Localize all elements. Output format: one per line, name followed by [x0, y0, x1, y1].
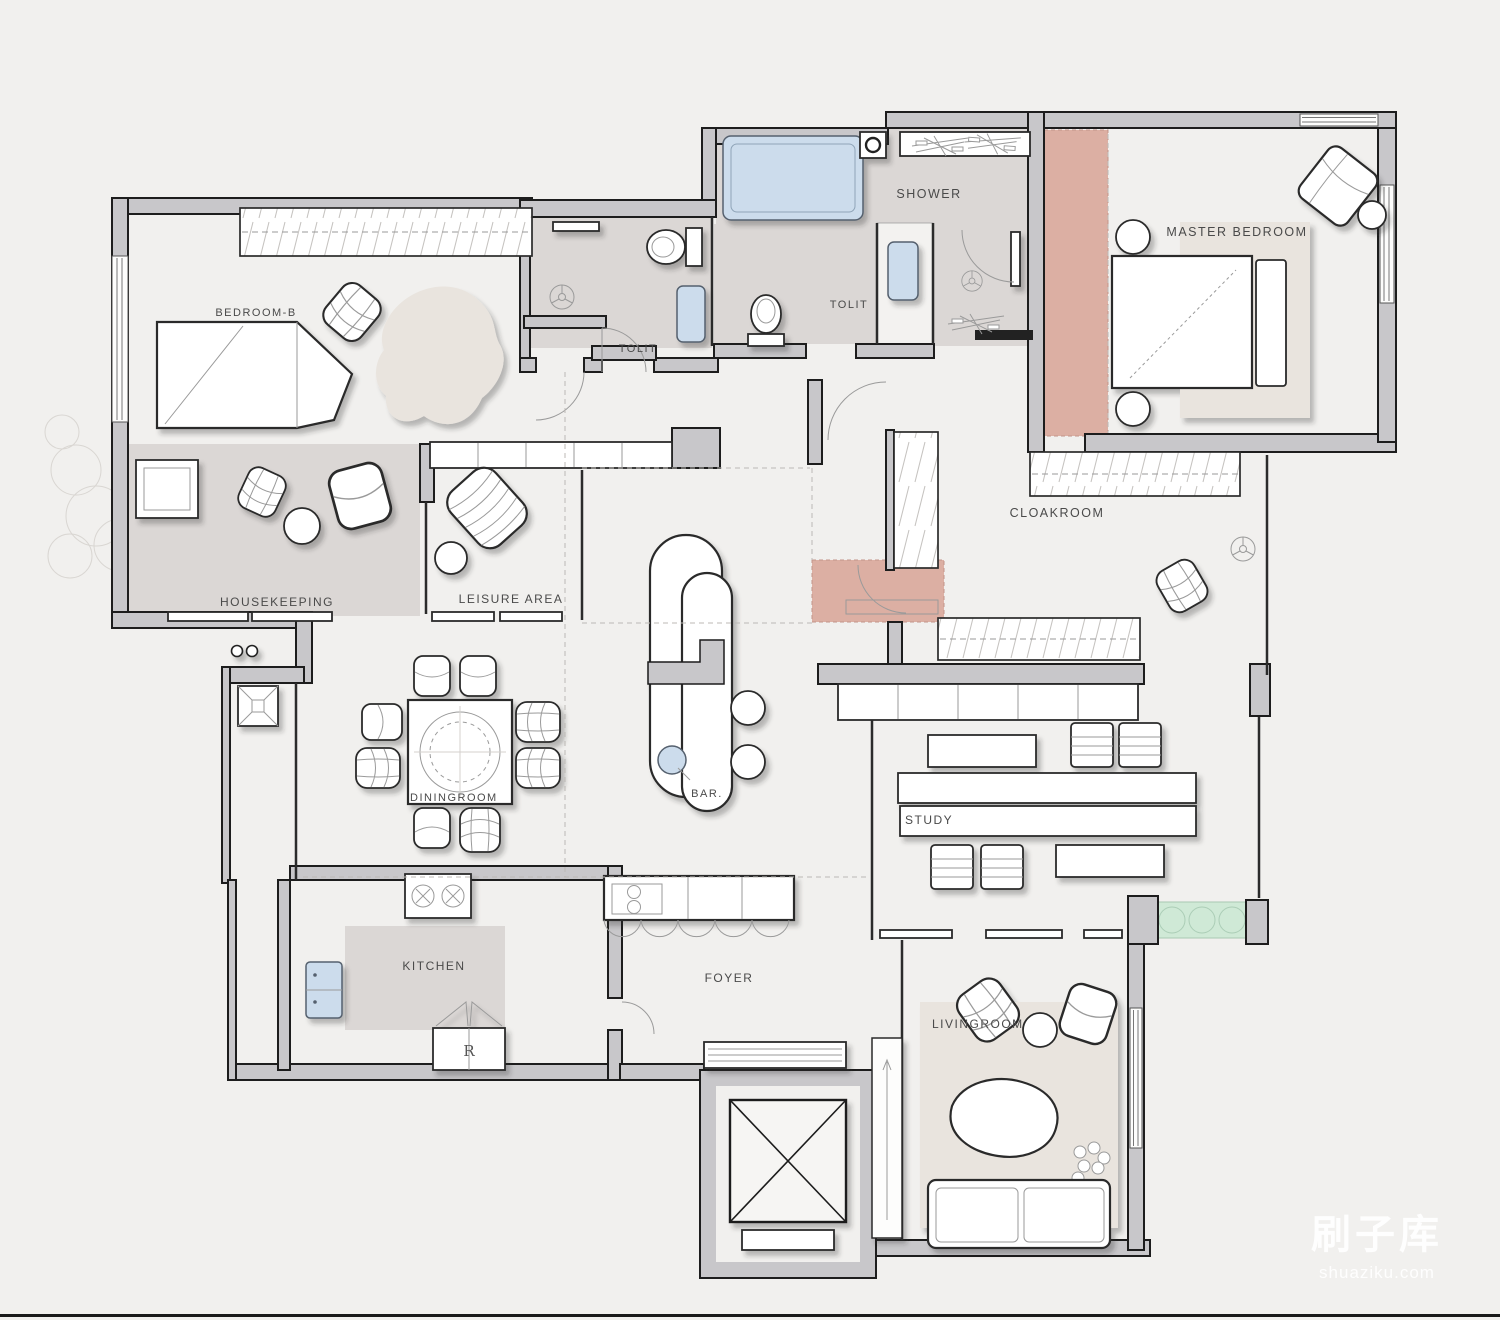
bar-counter	[648, 535, 732, 811]
living-coffee-table	[951, 1079, 1058, 1157]
watermark-brand: 刷子库	[1311, 1213, 1443, 1257]
dining-chair	[516, 702, 560, 742]
marker-dot	[247, 646, 258, 657]
watermark-site: shuaziku.com	[1319, 1263, 1435, 1282]
study-desk	[928, 735, 1036, 767]
page-bottom-border	[0, 1314, 1500, 1317]
dining-chair	[414, 808, 450, 848]
label-shower: SHOWER	[896, 187, 961, 201]
housekeeping-table	[136, 460, 198, 518]
bedroom-b-rug	[376, 286, 504, 424]
sink-a	[677, 286, 705, 342]
foyer-cabinet	[604, 876, 794, 920]
label-bar: BAR.	[691, 788, 723, 800]
study-desk-long	[898, 773, 1196, 803]
dining-chair	[516, 748, 560, 788]
cloakroom-chair	[1152, 555, 1211, 616]
bar-sink	[658, 746, 686, 774]
study-chair	[1071, 723, 1113, 767]
dining-chair	[460, 656, 496, 696]
toilet-a	[647, 228, 702, 266]
foyer-closet-scallops	[604, 920, 789, 937]
label-kitchen: KITCHEN	[402, 959, 465, 973]
bedroom-b-bed	[157, 322, 352, 428]
master-nightstand-top	[1116, 220, 1150, 254]
kitchen-island	[345, 926, 505, 1030]
cloakroom-fan-icon	[1231, 537, 1255, 561]
cloakroom-wardrobe-left	[894, 432, 938, 568]
entry-pink-zone	[812, 560, 944, 622]
bar-stool	[731, 691, 765, 725]
dining-chair	[414, 656, 450, 696]
label-cloakroom: CLOAKROOM	[1010, 506, 1105, 520]
living-side-table	[1023, 1013, 1057, 1047]
study-desk	[1056, 845, 1164, 877]
leisure-chaise	[441, 461, 534, 555]
fridge-letter: R	[463, 1042, 475, 1060]
dining-chair	[362, 704, 402, 740]
label-diningroom: DININGROOM	[410, 792, 498, 804]
study-cabinet-row	[838, 684, 1138, 720]
study-chair	[981, 845, 1023, 889]
towel-rail	[1011, 232, 1020, 286]
label-livingroom: LIVINGROOM	[932, 1017, 1024, 1031]
label-foyer: FOYER	[705, 971, 754, 985]
label-master-bedroom: MASTER BEDROOM	[1166, 225, 1307, 239]
leisure-cabinet-row	[430, 442, 672, 468]
floor-plan-page: R	[0, 0, 1500, 1320]
label-leisure-area: LEISURE AREA	[459, 592, 564, 606]
floor-plan-canvas: R	[0, 0, 1500, 1320]
label-study: STUDY	[905, 813, 953, 827]
entry-duct	[872, 1038, 902, 1238]
bar-stool	[731, 745, 765, 779]
dining-chair	[356, 748, 400, 788]
shower-partition	[975, 330, 1033, 340]
label-housekeeping: HOUSEKEEPING	[220, 595, 334, 609]
towel-rail	[553, 222, 599, 231]
bedroom-b-chair	[318, 278, 386, 346]
marker-dot	[232, 646, 243, 657]
sink-b	[888, 242, 918, 300]
cloakroom-wardrobe-bottom	[938, 618, 1140, 660]
housekeeping-stool	[284, 508, 320, 544]
master-wardrobe-pink	[1044, 130, 1108, 436]
dining-table	[408, 700, 512, 804]
bathtub	[723, 132, 886, 220]
toilet-b	[748, 295, 784, 346]
master-side-table	[1358, 201, 1386, 229]
living-sofa	[928, 1180, 1110, 1248]
label-tolit-b: TOLIT	[830, 299, 868, 311]
label-tolit-a: TOLIT	[619, 343, 657, 355]
leisure-side-table	[435, 542, 467, 574]
watermark: 刷子库 shuaziku.com	[1311, 1213, 1443, 1282]
dining-chair	[460, 808, 500, 852]
kitchen-stove	[405, 874, 471, 918]
kitchen-fridge	[306, 962, 342, 1018]
master-bed	[1112, 256, 1286, 388]
study-chair	[1119, 723, 1161, 767]
tolit-b-floor	[714, 224, 877, 344]
master-nightstand-bottom	[1116, 392, 1150, 426]
label-bedroom-b: BEDROOM-B	[215, 307, 296, 319]
light-well-shaft	[238, 686, 278, 726]
study-chair	[931, 845, 973, 889]
